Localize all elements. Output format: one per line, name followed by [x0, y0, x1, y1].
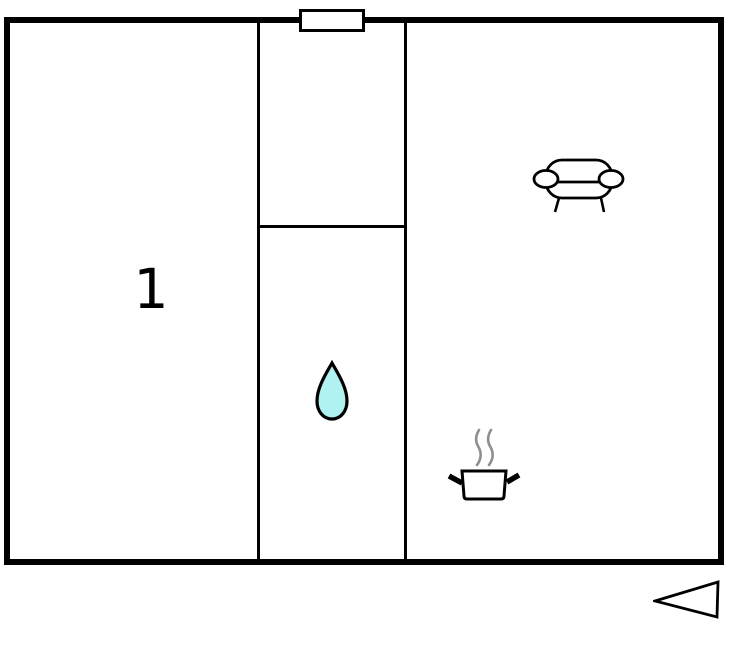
interior-wall-right	[404, 23, 407, 559]
floor-plan: 1	[0, 0, 747, 652]
steam-line	[488, 430, 493, 465]
water-drop-icon	[312, 360, 352, 423]
entrance-arrow-icon	[653, 579, 723, 621]
interior-wall-divider	[258, 225, 406, 228]
interior-wall-left	[257, 23, 260, 559]
exterior-walls	[4, 17, 724, 565]
window-icon	[299, 9, 365, 32]
cooking-pot-icon	[446, 426, 522, 504]
steam-line	[476, 430, 481, 465]
sofa-icon	[532, 156, 626, 216]
room-label: 1	[121, 262, 181, 317]
